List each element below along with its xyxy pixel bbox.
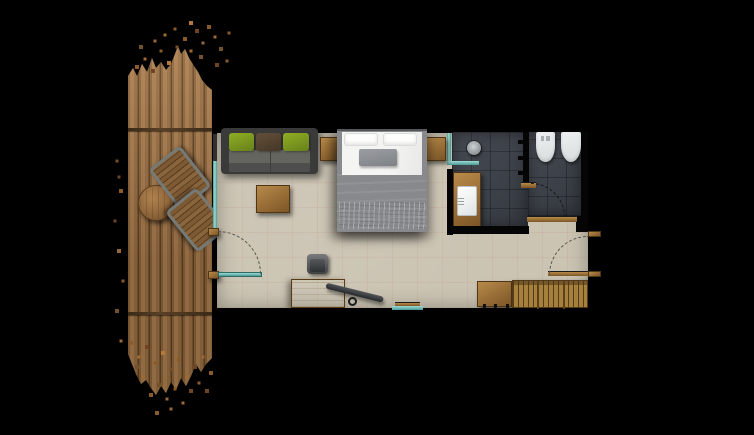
deck-debris-speckles-left xyxy=(114,150,116,152)
sofa-seat xyxy=(229,150,310,172)
wall-tick xyxy=(518,140,523,144)
cabinet-foot xyxy=(506,304,509,308)
deck-board-seam xyxy=(128,312,212,315)
bed-pillow xyxy=(344,133,378,146)
wall-tick xyxy=(518,171,523,175)
glass-facade xyxy=(213,161,217,229)
tv-pivot-ring xyxy=(348,297,357,306)
faucet-icon xyxy=(458,197,464,205)
bed-accent-pillow xyxy=(359,149,397,166)
wall-segment xyxy=(213,134,217,162)
door-jamb xyxy=(588,231,601,237)
sofa-cushion-green xyxy=(283,133,309,151)
toilet xyxy=(536,132,555,162)
deck-board-seam xyxy=(128,128,212,131)
double-bed xyxy=(337,129,427,232)
bed-throw xyxy=(339,202,425,229)
deck-debris-speckles-bottom xyxy=(122,332,124,334)
sofa-cushion-green xyxy=(229,133,254,151)
wardrobe xyxy=(512,280,588,308)
flush-buttons-icon xyxy=(541,136,550,141)
bathroom-south-wall xyxy=(447,226,529,234)
shower-glass-screen xyxy=(447,133,451,163)
nightstand xyxy=(425,137,446,161)
wall-segment xyxy=(576,216,588,232)
low-window-glass xyxy=(392,306,423,310)
sofa-cushion-brown xyxy=(256,133,281,151)
bed-pillow xyxy=(383,133,417,146)
desk-chair xyxy=(307,254,328,274)
wardrobe-divider xyxy=(537,281,539,309)
shower-glass-screen xyxy=(447,161,479,165)
floor-plan xyxy=(0,0,754,435)
bathroom-divider-wall xyxy=(523,132,529,184)
minibar-cabinet xyxy=(477,281,512,307)
deck-debris-speckles-top xyxy=(130,20,132,22)
wall-tick xyxy=(518,156,523,160)
cabinet-foot xyxy=(494,304,497,308)
cabinet-foot xyxy=(483,304,486,308)
door-jamb xyxy=(588,271,601,277)
sofa xyxy=(221,128,318,174)
shower-drain xyxy=(467,141,481,155)
coffee-table xyxy=(256,185,290,213)
desk xyxy=(291,279,345,308)
wardrobe-divider xyxy=(563,281,565,309)
